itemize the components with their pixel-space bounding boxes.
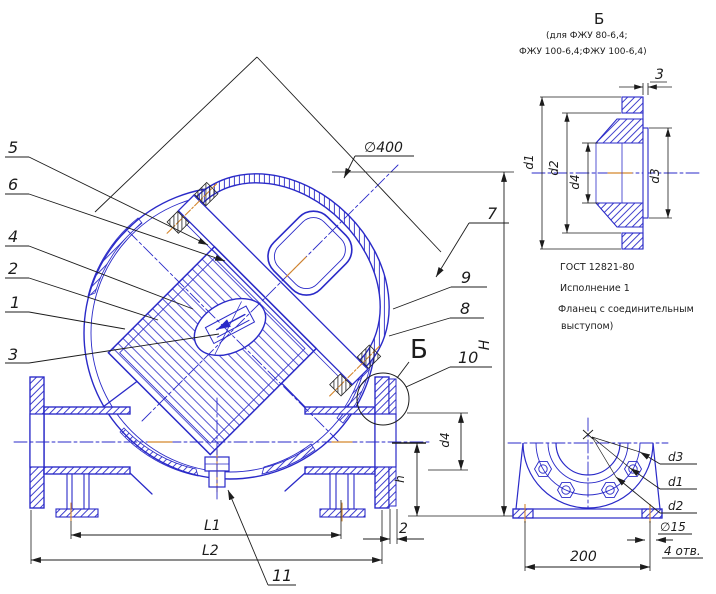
callout-11: 11 (272, 566, 292, 585)
dim-d4-sec: d4 (568, 174, 582, 189)
dim-d4-main: d4 (438, 432, 452, 447)
dim-200: 200 (570, 549, 597, 565)
dim-h: h (393, 475, 407, 483)
callout-8: 8 (460, 299, 470, 318)
view-b-cond2: ФЖУ 100-6,4;ФЖУ 100-6,4) (519, 47, 647, 57)
dim-dia400: ∅400 (364, 140, 403, 156)
callout-2: 2 (8, 259, 18, 278)
note-flanec-2: выступом) (561, 321, 613, 332)
note-ispolnenie: Исполнение 1 (560, 283, 630, 294)
dim-4-holes: 4 отв. (664, 544, 701, 558)
callout-3: 3 (8, 345, 18, 364)
callout-9: 9 (461, 268, 471, 287)
dim-L1: L1 (204, 518, 221, 534)
view-b-title: Б (594, 10, 604, 28)
callout-7: 7 (487, 204, 498, 223)
strainer-drawing: 5 6 4 2 1 3 7 9 8 10 11 Б ∅400 H h d4 L1… (0, 0, 716, 594)
dim-dia15: ∅15 (660, 520, 686, 534)
drawing-sheet: 5 6 4 2 1 3 7 9 8 10 11 Б ∅400 H h d4 L1… (0, 0, 716, 594)
callout-1: 1 (10, 293, 20, 312)
callout-5: 5 (8, 138, 18, 157)
note-gost: ГОСТ 12821-80 (560, 262, 634, 273)
dim-d2-sec: d2 (547, 160, 561, 175)
dim-d1-sec: d1 (522, 154, 536, 169)
dim-d2-front: d2 (668, 499, 683, 513)
callout-10: 10 (458, 348, 478, 367)
callout-6: 6 (8, 175, 18, 194)
view-b-cond1: (для ФЖУ 80-6,4; (546, 31, 628, 41)
dim-H: H (477, 339, 493, 350)
dim-L2: L2 (202, 543, 219, 559)
dim-face-3: 3 (655, 67, 664, 83)
dim-d1-front: d1 (668, 475, 683, 489)
view-b-section: Б (для ФЖУ 80-6,4; ФЖУ 100-6,4;ФЖУ 100-6… (519, 10, 694, 332)
note-flanec-1: Фланец с соединительным (558, 304, 694, 315)
callout-4: 4 (8, 227, 18, 246)
flange-front-view: d3 d1 d2 ∅15 4 отв. 200 (513, 430, 703, 571)
dim-gap2: 2 (399, 521, 408, 537)
dim-d3-sec: d3 (648, 168, 662, 183)
detail-marker-label: Б (410, 335, 428, 365)
dim-d3-front: d3 (668, 450, 683, 464)
